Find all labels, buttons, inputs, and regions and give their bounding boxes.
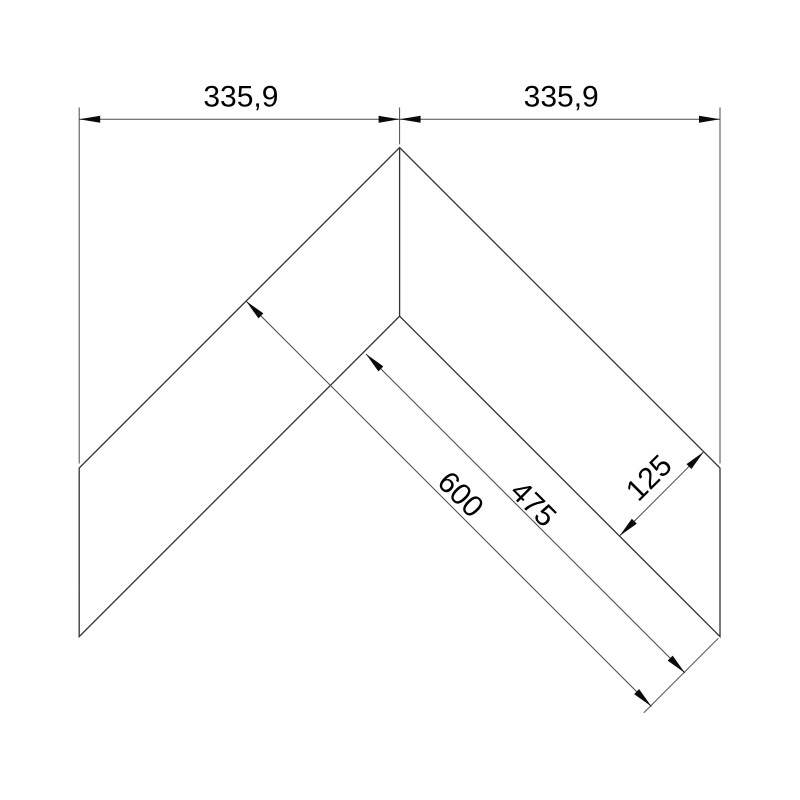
svg-text:335,9: 335,9 <box>203 81 278 114</box>
svg-text:335,9: 335,9 <box>524 81 599 114</box>
